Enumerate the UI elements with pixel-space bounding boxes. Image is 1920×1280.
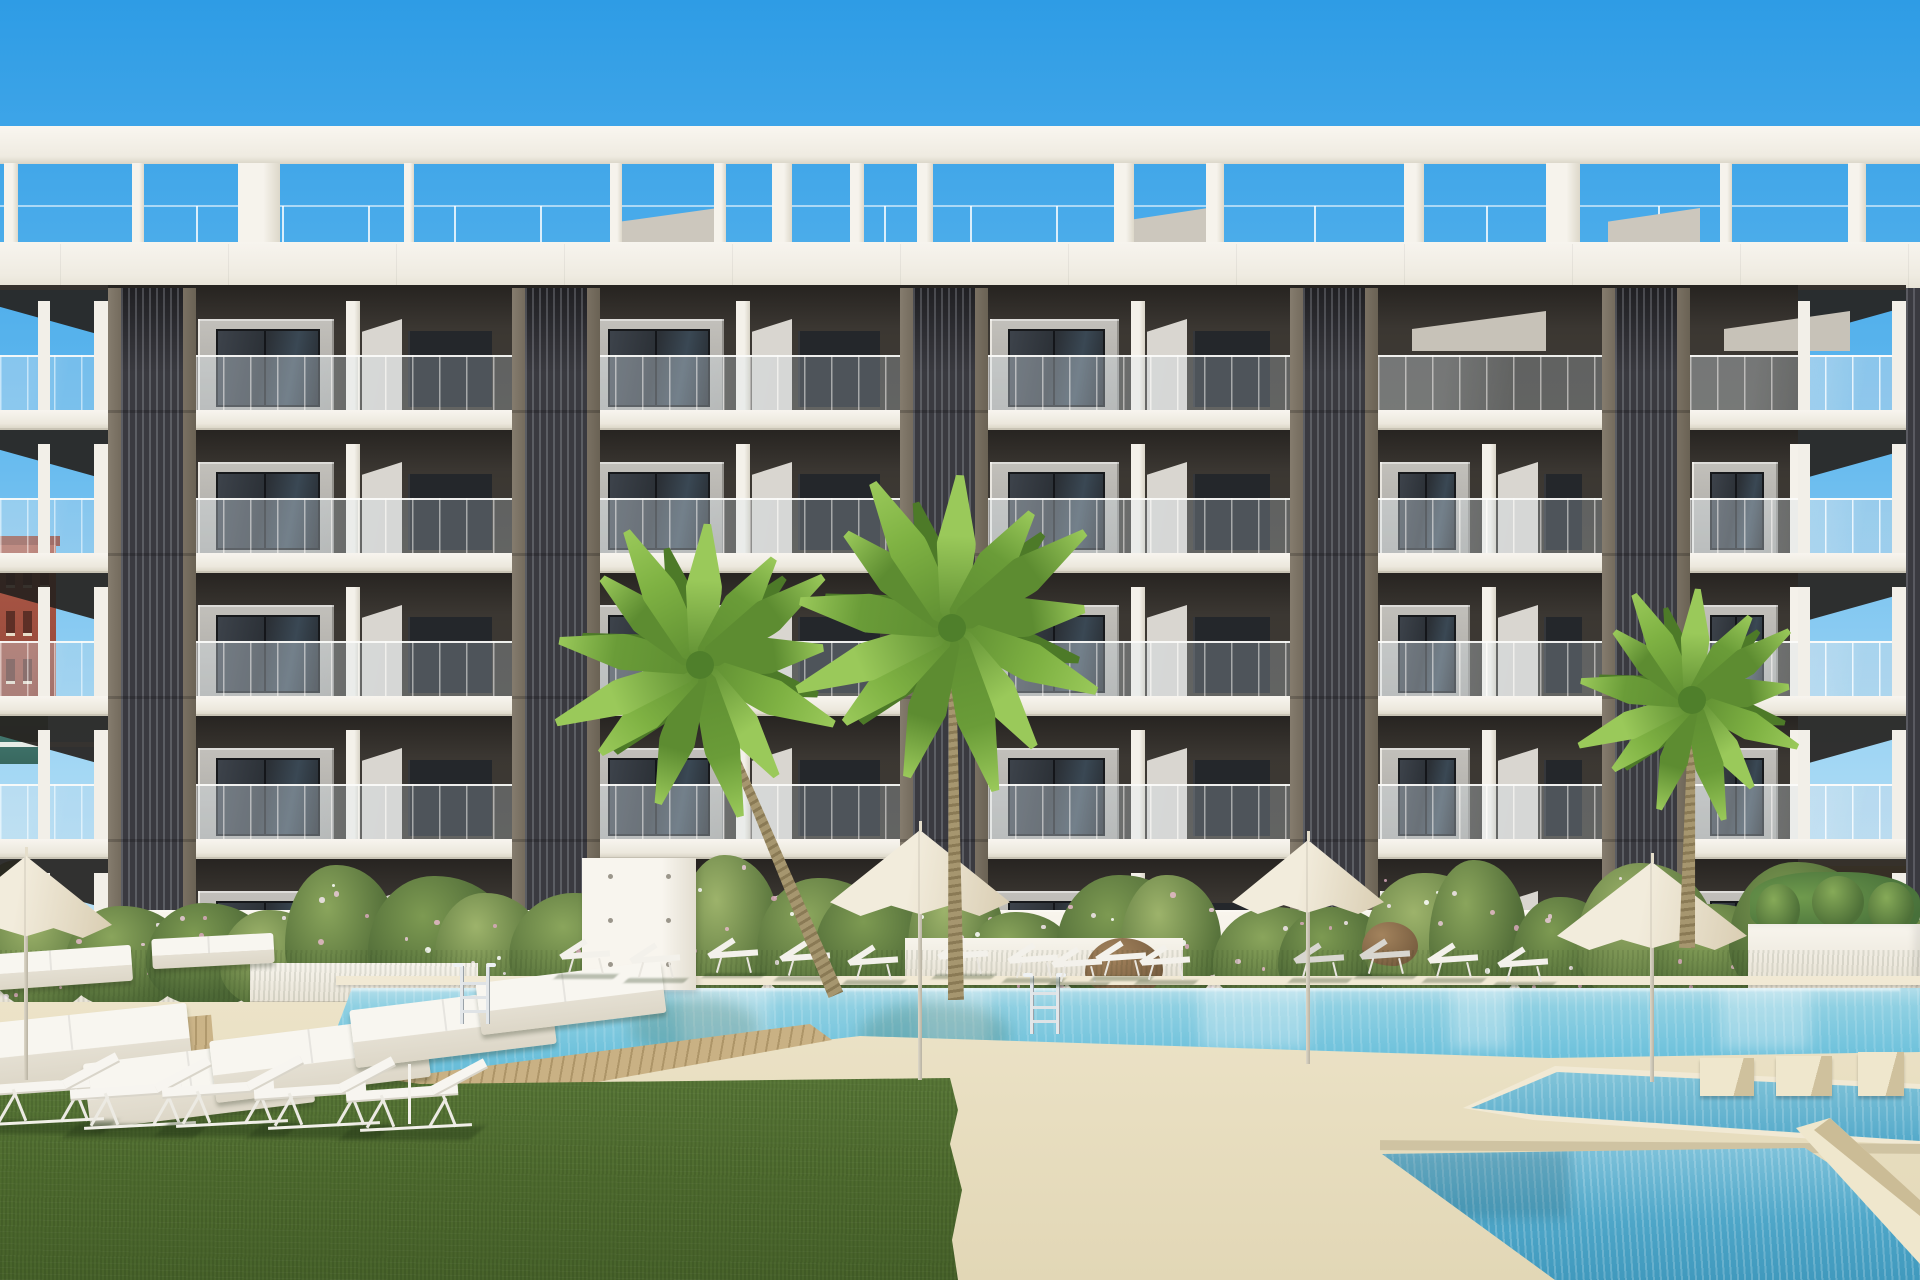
balcony-glass-railing — [1798, 641, 1906, 703]
lounger-leg — [1536, 966, 1542, 982]
column-seam — [512, 553, 600, 556]
edge-post — [1892, 730, 1906, 840]
foreground-lounger — [340, 1062, 500, 1152]
pool-ladder-handle — [486, 963, 496, 967]
lounger-shadow — [1134, 980, 1199, 985]
lounger-leg — [1436, 962, 1442, 978]
balcony-glass-railing — [1378, 641, 1602, 703]
parasol-rib — [1306, 840, 1308, 914]
hedge-flower — [1041, 925, 1046, 930]
bg-red-window — [23, 611, 32, 633]
sun-lounger — [552, 934, 626, 984]
sun-lounger — [1420, 938, 1494, 988]
lounger-shadow — [554, 974, 619, 979]
mattress-seam — [207, 936, 210, 953]
hedge-flower — [1452, 891, 1458, 897]
pergola-glass-post — [1314, 206, 1316, 242]
fascia-seam — [900, 244, 901, 288]
balcony-glass-railing — [196, 641, 512, 703]
stepping-block — [1700, 1058, 1754, 1096]
edge-post — [94, 730, 108, 840]
sun-lounger — [1490, 942, 1564, 992]
hedge-flower — [1300, 922, 1304, 926]
hedge-flower — [493, 924, 497, 928]
pergola-post — [714, 163, 726, 243]
column-seam — [1290, 553, 1378, 556]
balcony-glass-railing — [196, 784, 512, 846]
lounger-leg — [788, 960, 794, 976]
lounger-leg — [1398, 958, 1404, 974]
parasol-rib — [1650, 862, 1652, 950]
bg-red-window — [6, 611, 15, 633]
edge-post — [1798, 444, 1810, 554]
lounger-leg — [886, 964, 892, 980]
fascia-seam — [60, 244, 61, 288]
pergola-glass-post — [368, 206, 370, 242]
pergola-post — [850, 163, 864, 243]
lounger-leg — [380, 1095, 396, 1128]
column-seam — [1602, 410, 1690, 413]
column-seam — [900, 410, 988, 413]
fascia-seam — [1740, 244, 1741, 288]
hedge-flower — [282, 916, 286, 920]
hedge-flower — [76, 939, 81, 944]
parasol-finial — [1651, 853, 1654, 863]
edge-post — [1892, 301, 1906, 411]
hedge-flower — [319, 897, 324, 902]
edge-post — [38, 444, 50, 554]
lounger-leg — [1506, 966, 1512, 982]
pool-ladder-rung — [1033, 1020, 1056, 1023]
pergola-glass-post — [884, 206, 886, 242]
hedge-flower — [1387, 904, 1392, 909]
louver-column-frame — [512, 288, 525, 1002]
pool-ladder-rail — [460, 966, 463, 1024]
column-seam — [1602, 553, 1690, 556]
shower-fixture-dot — [666, 918, 671, 923]
pergola-glass-post — [196, 206, 198, 242]
lounger-leg — [976, 958, 982, 974]
lounger-leg — [288, 1093, 304, 1126]
edge-post — [38, 587, 50, 697]
edge-post — [94, 444, 108, 554]
hedge-flower — [180, 916, 185, 921]
pergola-post — [132, 163, 144, 243]
fascia-seam — [1908, 244, 1909, 288]
lounger-leg — [638, 962, 644, 978]
pool-ladder-rail — [486, 966, 489, 1024]
hedge-flower — [742, 865, 746, 869]
edge-post — [1798, 587, 1810, 697]
parasol-finial — [25, 847, 28, 857]
balcony-glass-railing — [196, 355, 512, 417]
column-seam — [512, 839, 600, 842]
balcony-glass-railing — [588, 355, 900, 417]
pergola-glass-post — [970, 206, 972, 242]
shower-fixture-dot — [666, 874, 671, 879]
fascia-seam — [396, 244, 397, 288]
balcony-glass-railing — [196, 498, 512, 560]
stepping-block — [1858, 1052, 1904, 1096]
lounger-leg — [196, 1091, 212, 1124]
hedge-flower — [1344, 921, 1348, 925]
hedge-flower — [405, 937, 409, 941]
column-seam — [108, 410, 196, 413]
lounger-shadow — [932, 974, 997, 979]
roof-fascia — [0, 242, 1920, 290]
parasol-rib — [24, 856, 26, 938]
parasol-rib — [918, 830, 920, 916]
edge-post — [1892, 444, 1906, 554]
sun-lounger — [622, 938, 696, 988]
lounger-leg — [12, 1089, 28, 1122]
pergola-post — [1848, 163, 1866, 243]
balcony-glass-railing — [0, 641, 108, 703]
hedge-flower — [1111, 918, 1114, 921]
sun-lounger — [1352, 934, 1426, 984]
lounger-leg — [1368, 958, 1374, 974]
edge-post — [1798, 301, 1810, 411]
hedge-flower — [1209, 908, 1214, 913]
pergola-post — [404, 163, 414, 243]
pergola-glass-post — [1056, 206, 1058, 242]
fascia-seam — [564, 244, 565, 288]
balcony-glass-railing — [1798, 784, 1906, 846]
edge-post — [1892, 587, 1906, 697]
pergola-post — [1546, 163, 1580, 243]
column-seam — [108, 696, 196, 699]
sun-lounger — [700, 933, 774, 983]
column-seam — [1290, 696, 1378, 699]
pool-ladder-rung — [1033, 992, 1056, 995]
hedge-flower — [1329, 926, 1332, 929]
balcony-glass-railing — [1798, 355, 1906, 417]
hedge-flower — [318, 939, 324, 945]
shower-fixture-dot — [608, 874, 613, 879]
lounger-leg — [1148, 964, 1154, 980]
parasol-pole — [918, 908, 922, 1080]
pool-ladder-rung — [1033, 1006, 1056, 1009]
column-seam — [1290, 410, 1378, 413]
lounger-leg — [668, 962, 674, 978]
lounger-leg — [104, 1093, 120, 1126]
pool-ladder-rung — [463, 1010, 486, 1013]
mattress-seam — [441, 999, 447, 1031]
pergola-post — [917, 163, 933, 243]
balcony-glass-railing — [988, 784, 1290, 846]
fascia-seam — [1236, 244, 1237, 288]
palm-crown — [686, 651, 714, 679]
balcony-glass-railing — [1378, 498, 1602, 560]
lounger-shadow — [1422, 978, 1487, 983]
shower-fixture-dot — [608, 918, 613, 923]
pergola-glass-post — [454, 206, 456, 242]
column-seam — [1290, 839, 1378, 842]
balcony-glass-railing — [1798, 498, 1906, 560]
lounger-shadow — [1288, 978, 1353, 983]
louver-column-slats — [121, 288, 183, 1002]
lounger-leg — [1332, 962, 1338, 978]
parasol-finial — [1307, 831, 1310, 841]
sun-lounger — [840, 940, 914, 990]
mattress-seam — [49, 950, 52, 970]
parasol-pole — [1306, 906, 1310, 1064]
lounger-leg — [1016, 962, 1022, 978]
parasol-finial — [919, 821, 922, 831]
hedge-flower — [1619, 877, 1622, 880]
pergola-post — [772, 163, 792, 243]
sun-mattress-platform — [151, 933, 274, 969]
pergola-glass-post — [540, 206, 542, 242]
edge-post — [94, 587, 108, 697]
palm-crown — [1678, 686, 1706, 714]
pergola-post — [4, 163, 18, 243]
column-seam — [512, 410, 600, 413]
hedge-flower — [1424, 900, 1429, 905]
hedge-flower — [1548, 914, 1552, 918]
stepping-block — [1776, 1056, 1832, 1096]
fascia-seam — [1572, 244, 1573, 288]
fascia-seam — [1068, 244, 1069, 288]
lounger-shadow — [1492, 982, 1557, 987]
pool-ladder-rung — [463, 982, 486, 985]
lounger-leg — [1104, 960, 1110, 976]
lounger-leg — [716, 957, 722, 973]
balcony-glass-railing — [988, 355, 1290, 417]
scene-root — [0, 0, 1920, 1280]
hedge-flower — [141, 943, 144, 946]
edge-post — [94, 301, 108, 411]
pergola-post — [238, 163, 280, 243]
palm-crown — [938, 614, 966, 642]
lounger-leg — [598, 958, 604, 974]
lounger-leg — [1178, 964, 1184, 980]
balcony-glass-railing — [1378, 355, 1602, 417]
sun-lounger — [930, 934, 1004, 984]
balcony-glass-railing — [1378, 784, 1602, 846]
pool-ladder-rung — [463, 996, 486, 999]
edge-post — [38, 301, 50, 411]
hedge-flower — [1091, 913, 1096, 918]
edge-post — [1798, 730, 1810, 840]
lounger-leg — [568, 958, 574, 974]
pergola-post — [1720, 163, 1732, 243]
pool-ladder-handle — [453, 963, 463, 967]
lounger-shadow — [624, 978, 689, 983]
fascia-seam — [1404, 244, 1405, 288]
hedge-flower — [434, 920, 440, 926]
lounger-leg — [856, 964, 862, 980]
balcony-glass-railing — [588, 784, 900, 846]
raised-planter-shrub — [1812, 876, 1864, 928]
hedge-flower — [698, 888, 702, 892]
hedge-flower — [1438, 921, 1443, 926]
fascia-seam — [228, 244, 229, 288]
pergola-beam — [0, 126, 1920, 164]
hedge-flower — [790, 912, 794, 916]
pergola-glass-post — [282, 206, 284, 242]
sun-lounger — [1286, 938, 1360, 988]
hedge-flower — [334, 891, 339, 896]
lounger-leg — [1466, 962, 1472, 978]
column-seam — [108, 553, 196, 556]
sun-lounger — [1132, 940, 1206, 990]
pergola-glass-post — [1486, 206, 1488, 242]
lounger-back — [430, 1058, 487, 1094]
pergola-post — [610, 163, 622, 243]
column-seam — [108, 839, 196, 842]
louver-column-frame — [108, 288, 121, 1002]
hedge-flower — [1490, 910, 1495, 915]
hedge-flower — [725, 927, 729, 931]
hedge-flower — [1170, 892, 1175, 897]
column-seam — [1602, 839, 1690, 842]
lounger-leg — [1060, 966, 1066, 982]
balcony-glass-railing — [0, 355, 108, 417]
lounger-leg — [442, 1095, 458, 1128]
hedge-flower — [771, 896, 776, 901]
parasol-pole — [1650, 942, 1654, 1082]
hedge-flower — [365, 914, 369, 918]
pergola-post — [1404, 163, 1424, 243]
mattress-seam — [68, 1015, 74, 1050]
pergola-glass-rail-line — [0, 205, 1920, 207]
hedge-flower — [332, 884, 335, 887]
deck-pole — [408, 1064, 411, 1124]
lounger-shadow — [702, 973, 767, 978]
balcony-glass-railing — [0, 784, 108, 846]
pergola-post — [1206, 163, 1224, 243]
balcony-glass-railing — [0, 498, 108, 560]
edge-post — [38, 730, 50, 840]
lounger-leg — [746, 957, 752, 973]
fascia-seam — [732, 244, 733, 288]
hedge-flower — [203, 916, 207, 920]
hedge-flower — [1068, 905, 1072, 909]
louver-column-frame — [183, 288, 196, 1002]
lounger-shadow — [842, 980, 907, 985]
lounger-shadow — [1354, 974, 1419, 979]
pergola-post — [1114, 163, 1134, 243]
